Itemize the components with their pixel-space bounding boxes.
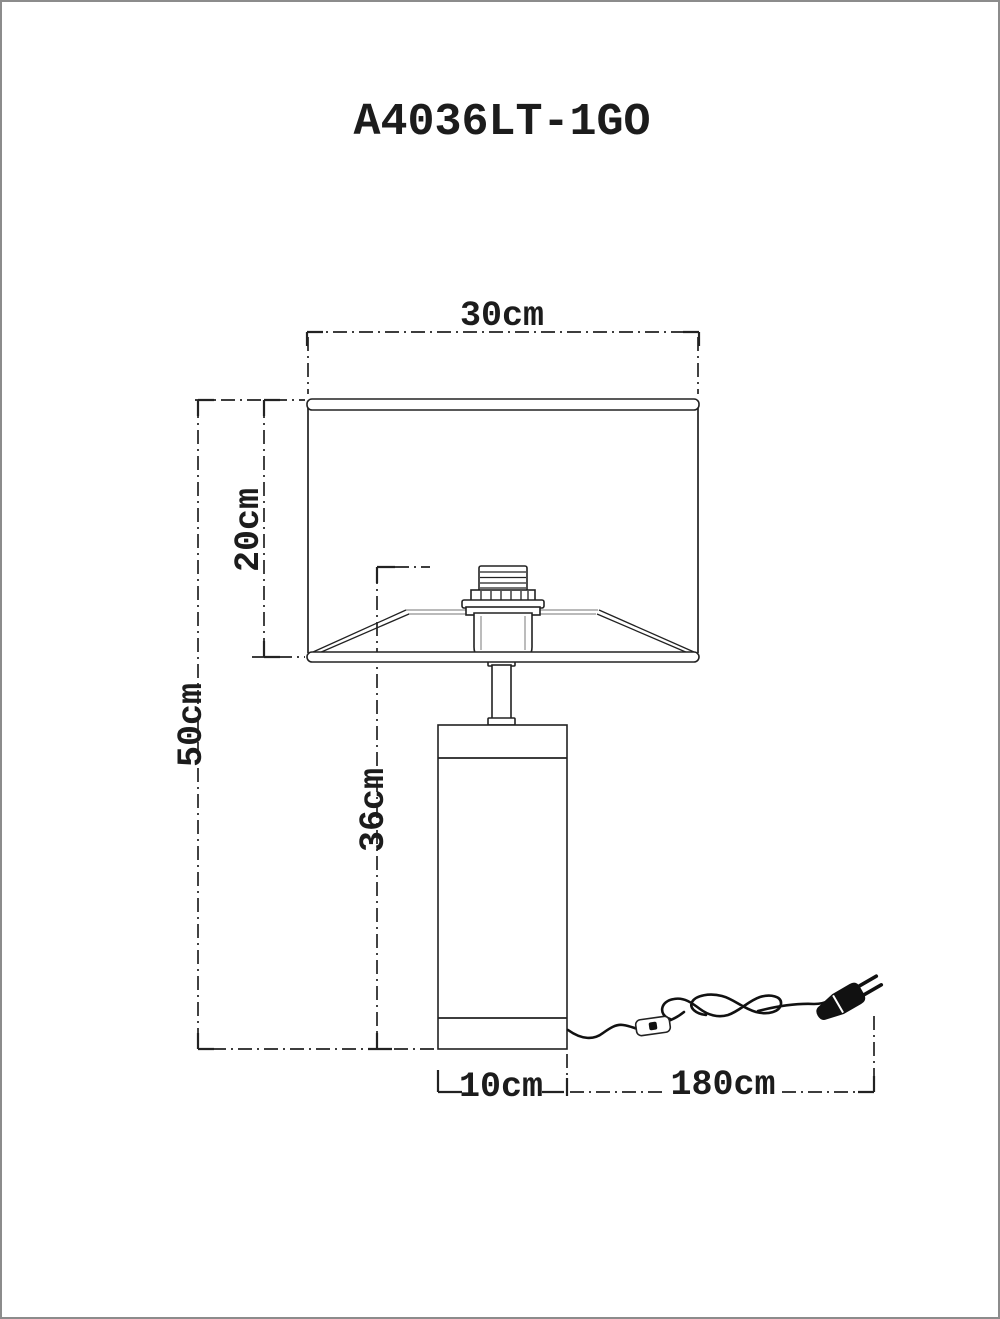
- dim-base-width-label: 10cm: [459, 1067, 543, 1107]
- lampshade: [307, 399, 699, 725]
- power-cord: [568, 971, 884, 1038]
- product-code: A4036LT-1GO: [353, 97, 650, 148]
- cord-switch: [635, 1016, 671, 1037]
- dim-body-height-label: 36cm: [354, 768, 394, 852]
- lamp-body: [438, 725, 567, 1049]
- dim-ticks: [858, 1076, 874, 1092]
- dim-total-height: 50cm: [172, 400, 214, 1049]
- neck-shaft: [492, 665, 511, 720]
- dim-shade-height: 20cm: [229, 400, 280, 657]
- cord-segment-1: [568, 1025, 638, 1038]
- switch-button: [648, 1021, 657, 1030]
- lamp-neck: [488, 659, 515, 725]
- dim-shade-width-label: 30cm: [460, 296, 544, 336]
- lamp-technical-drawing: A4036LT-1GO 30cm 50cm 20cm 36cm: [2, 2, 1000, 1319]
- lamp-socket: [462, 566, 544, 658]
- neck-bottom-flange: [488, 718, 515, 725]
- extension-lines: [308, 337, 698, 394]
- drawing-page: A4036LT-1GO 30cm 50cm 20cm 36cm: [0, 0, 1000, 1319]
- dim-shade-width: 30cm: [307, 296, 699, 394]
- dim-shade-height-label: 20cm: [229, 488, 269, 572]
- dim-cord-length: 180cm: [567, 1016, 874, 1105]
- dim-base-width: 10cm: [438, 1067, 567, 1107]
- dim-body-height: 36cm: [354, 567, 395, 1049]
- dim-cord-length-label: 180cm: [670, 1065, 775, 1105]
- shade-top-rim: [307, 399, 699, 410]
- shade-bottom-rim: [307, 652, 699, 662]
- body-outline: [438, 725, 567, 1049]
- dim-total-height-label: 50cm: [172, 683, 212, 767]
